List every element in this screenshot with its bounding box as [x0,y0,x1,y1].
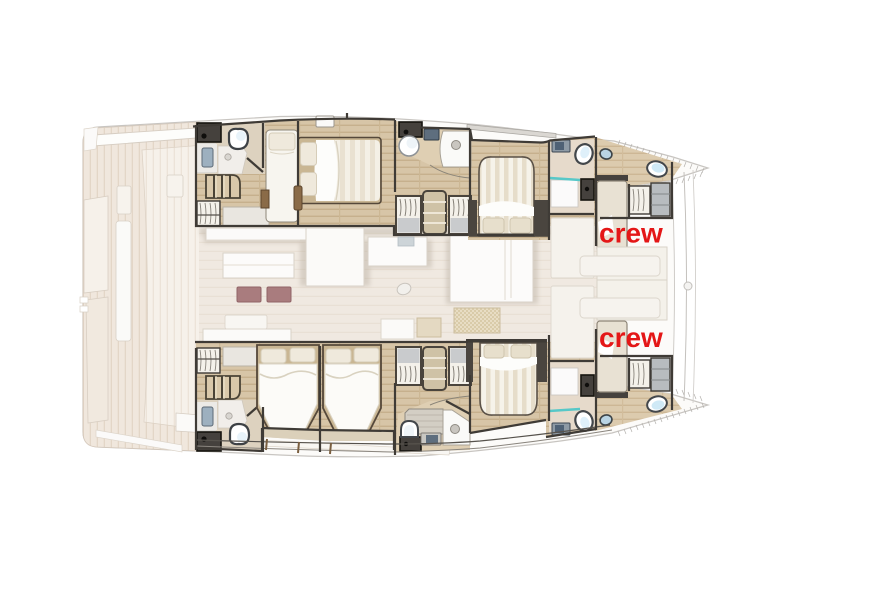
svg-text:crew: crew [599,218,663,249]
svg-text:crew: crew [599,322,663,353]
